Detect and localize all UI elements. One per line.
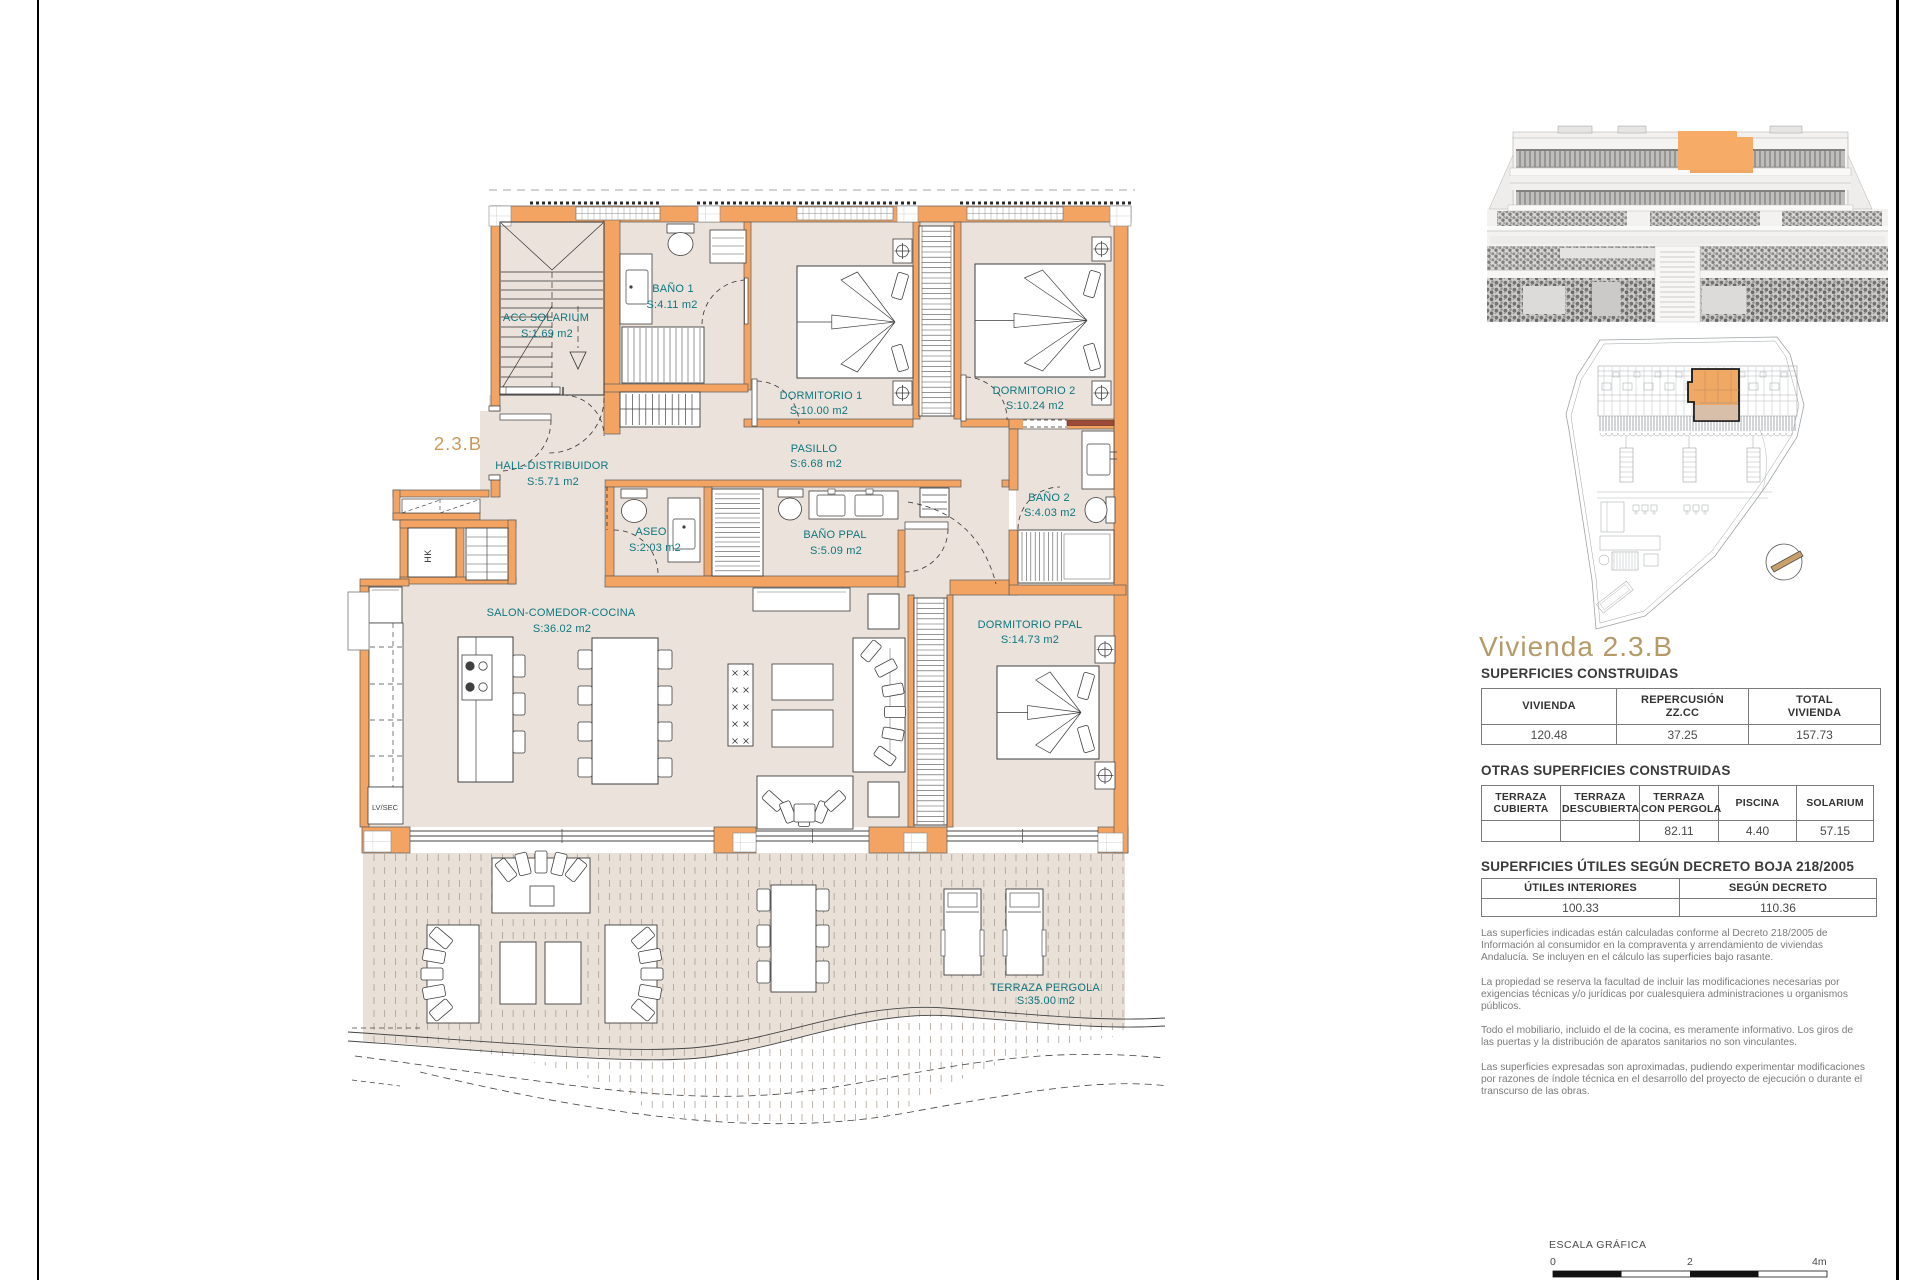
svg-text:S:36.02 m2: S:36.02 m2 [533, 623, 591, 635]
svg-text:HK: HK [423, 549, 433, 563]
svg-text:S:10.00 m2: S:10.00 m2 [790, 405, 848, 417]
svg-text:HALL-DISTRIBUIDOR: HALL-DISTRIBUIDOR [495, 460, 608, 472]
svg-text:S:14.73 m2: S:14.73 m2 [1001, 634, 1059, 646]
svg-text:S:4.11 m2: S:4.11 m2 [646, 299, 697, 311]
svg-text:S:5.09 m2: S:5.09 m2 [810, 545, 862, 557]
svg-text:S:6.68 m2: S:6.68 m2 [790, 458, 842, 470]
svg-text:PASILLO: PASILLO [791, 443, 838, 455]
svg-text:ASEO: ASEO [635, 526, 667, 538]
svg-text:BAÑO 1: BAÑO 1 [652, 282, 694, 295]
svg-text:S:5.71 m2: S:5.71 m2 [527, 476, 579, 488]
svg-text:S:4.03 m2: S:4.03 m2 [1024, 507, 1076, 519]
svg-text:S:1.69 m2: S:1.69 m2 [521, 328, 573, 340]
svg-text:S:2.03 m2: S:2.03 m2 [629, 542, 681, 554]
svg-text:TERRAZA PERGOLA: TERRAZA PERGOLA [990, 982, 1100, 994]
svg-text:DORMITORIO 2: DORMITORIO 2 [993, 385, 1076, 397]
svg-text:ACC SOLARIUM: ACC SOLARIUM [503, 312, 589, 324]
svg-text:LV/SEC: LV/SEC [372, 803, 399, 812]
svg-text:SALON-COMEDOR-COCINA: SALON-COMEDOR-COCINA [487, 607, 636, 619]
svg-text:BAÑO 2: BAÑO 2 [1028, 491, 1070, 504]
svg-text:DORMITORIO PPAL: DORMITORIO PPAL [978, 619, 1083, 631]
svg-text:S:35.00 m2: S:35.00 m2 [1017, 995, 1075, 1007]
svg-text:S:10.24 m2: S:10.24 m2 [1006, 400, 1064, 412]
svg-text:DORMITORIO 1: DORMITORIO 1 [780, 390, 863, 402]
svg-text:2.3.B: 2.3.B [434, 433, 482, 454]
svg-text:BAÑO PPAL: BAÑO PPAL [803, 528, 866, 541]
